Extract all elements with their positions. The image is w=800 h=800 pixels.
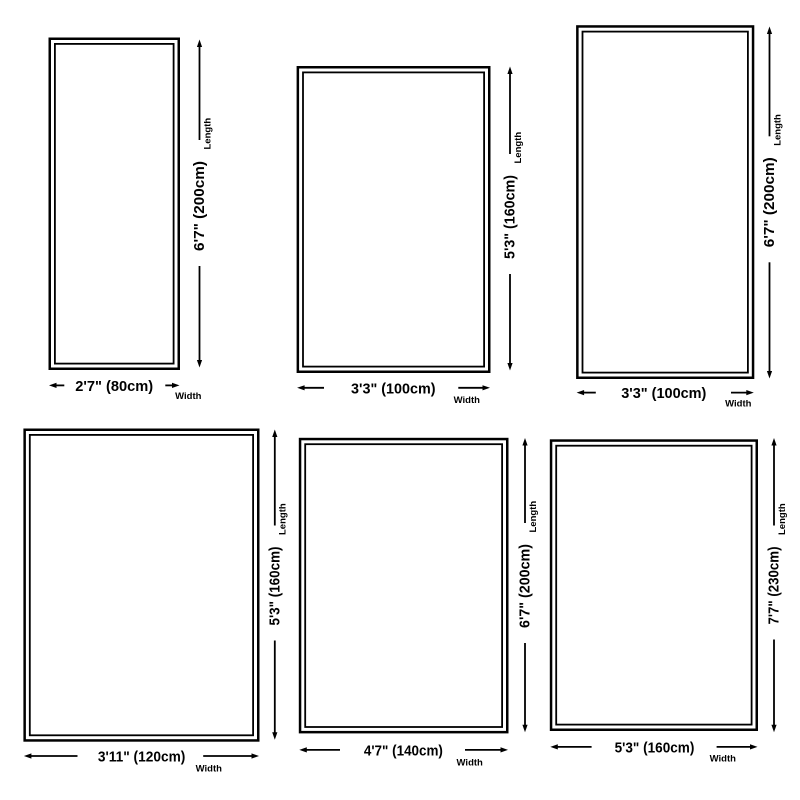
svg-text:3'3" (100cm): 3'3" (100cm): [351, 380, 436, 397]
svg-text:Width: Width: [725, 399, 751, 410]
svg-text:Width: Width: [175, 391, 201, 402]
svg-text:6'7" (200cm): 6'7" (200cm): [761, 157, 778, 247]
svg-text:Width: Width: [454, 395, 480, 406]
svg-text:7'7" (230cm): 7'7" (230cm): [766, 547, 783, 625]
svg-text:5'3" (160cm): 5'3" (160cm): [615, 739, 695, 756]
svg-text:Length: Length: [513, 132, 524, 164]
svg-text:Width: Width: [196, 763, 222, 774]
svg-text:3'11" (120cm): 3'11" (120cm): [98, 749, 186, 766]
svg-text:5'3" (160cm): 5'3" (160cm): [502, 175, 519, 259]
svg-text:Length: Length: [777, 503, 788, 535]
svg-text:Width: Width: [457, 757, 483, 768]
svg-text:3'3" (100cm): 3'3" (100cm): [621, 385, 706, 402]
svg-text:6'7" (200cm): 6'7" (200cm): [517, 544, 534, 628]
svg-text:Length: Length: [528, 501, 539, 533]
svg-text:5'3" (160cm): 5'3" (160cm): [266, 547, 283, 626]
svg-text:2'7" (80cm): 2'7" (80cm): [75, 378, 153, 395]
svg-text:Length: Length: [772, 114, 783, 146]
svg-text:4'7" (140cm): 4'7" (140cm): [364, 742, 443, 759]
svg-text:Width: Width: [710, 754, 736, 765]
svg-text:Length: Length: [202, 118, 213, 150]
svg-text:6'7" (200cm): 6'7" (200cm): [191, 161, 208, 251]
svg-text:Length: Length: [278, 503, 289, 535]
